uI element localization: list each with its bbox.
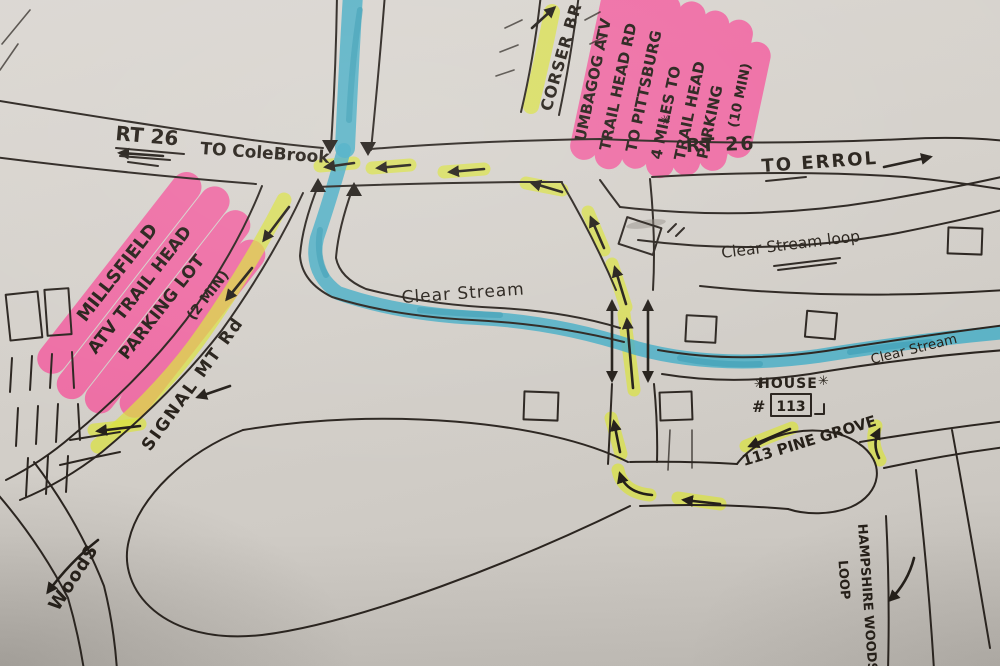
rt26-east-dest-label: TO ERROL <box>761 148 879 177</box>
clear-stream-loop-road-south <box>700 286 1000 295</box>
woods-label: WoodS <box>45 541 103 615</box>
map-canvas: RT 26 TO ColeBrook RT 26 TO ERROL CORSER… <box>0 0 1000 666</box>
building-square <box>524 391 559 420</box>
building-tick-marks <box>668 224 684 236</box>
clear-stream-north-bank <box>300 186 624 342</box>
building-square <box>685 315 716 343</box>
middle-road-upper <box>562 179 654 290</box>
hampshire-woods-loop-road <box>886 430 990 666</box>
loop-road-south <box>127 430 630 636</box>
house-number: 113 <box>776 399 805 415</box>
building-square <box>948 227 983 254</box>
hampshire-woods-loop-label: HAMPSHIRE WOODS LOOP <box>832 523 879 666</box>
stray-pen-marks <box>0 10 30 70</box>
house-box-tick <box>815 404 824 414</box>
hampshire-line2: LOOP <box>835 560 853 600</box>
house-label: HOUSE <box>758 376 818 392</box>
errol-direction-arrow <box>884 157 930 167</box>
clear-stream-water <box>315 150 1000 361</box>
clear-stream-loop-label: Clear Stream loop <box>720 227 861 262</box>
building-square <box>660 391 693 420</box>
house-star-right-icon: ✳ <box>818 374 829 389</box>
colebrook-arrow-tail <box>128 162 158 166</box>
rt26-west-route-label: RT 26 <box>115 121 180 150</box>
stream-loop-underline <box>774 258 840 270</box>
hand-drawn-map-photo: RT 26 TO ColeBrook RT 26 TO ERROL CORSER… <box>0 0 1000 666</box>
building-square <box>805 311 837 340</box>
parking-rect <box>6 291 43 340</box>
loop-road-connector <box>600 180 620 207</box>
clear-stream-label: Clear Stream <box>401 279 525 308</box>
stream-top-right-bank <box>371 0 385 150</box>
errol-underline <box>766 177 806 181</box>
hampshire-bend-arrow <box>890 558 914 600</box>
rt26-west-dest-label: TO ColeBrook <box>200 139 331 168</box>
woods-road <box>0 462 117 666</box>
house-number-sign: # <box>752 397 765 416</box>
hampshire-line1: HAMPSHIRE WOODS <box>854 523 879 666</box>
driveway-lines <box>668 430 692 470</box>
loop-road-north <box>243 419 628 462</box>
